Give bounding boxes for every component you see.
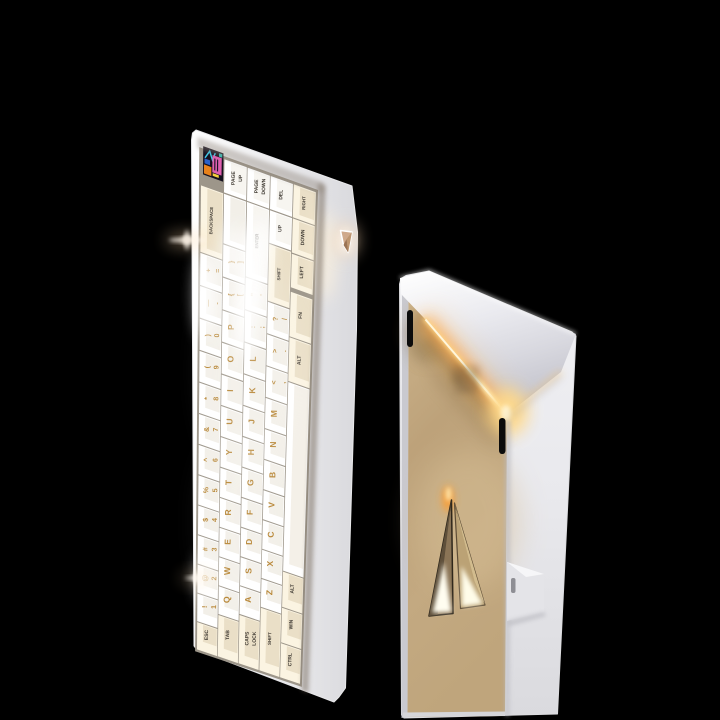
svg-text:ESC: ESC: [204, 629, 210, 640]
svg-text:FN: FN: [298, 312, 304, 319]
svg-text:LEFT: LEFT: [299, 266, 305, 279]
svg-text:CTRL: CTRL: [287, 653, 293, 666]
svg-text:PAGEDOWN: PAGEDOWN: [254, 178, 268, 195]
svg-text:BACKSPACE: BACKSPACE: [208, 207, 214, 235]
svg-text:RIGHT: RIGHT: [301, 196, 306, 210]
svg-text:WIN: WIN: [288, 619, 294, 629]
svg-text:UP: UP: [277, 224, 283, 232]
svg-text:TAB: TAB: [225, 630, 231, 640]
svg-text:ALT: ALT: [290, 584, 296, 594]
svg-text:SHIFT: SHIFT: [267, 632, 272, 645]
svg-text:CAPSLOCK: CAPSLOCK: [244, 631, 258, 646]
svg-text:DOWN: DOWN: [300, 229, 306, 245]
svg-text:DEL: DEL: [278, 190, 284, 200]
svg-text:Z: Z: [264, 590, 274, 596]
